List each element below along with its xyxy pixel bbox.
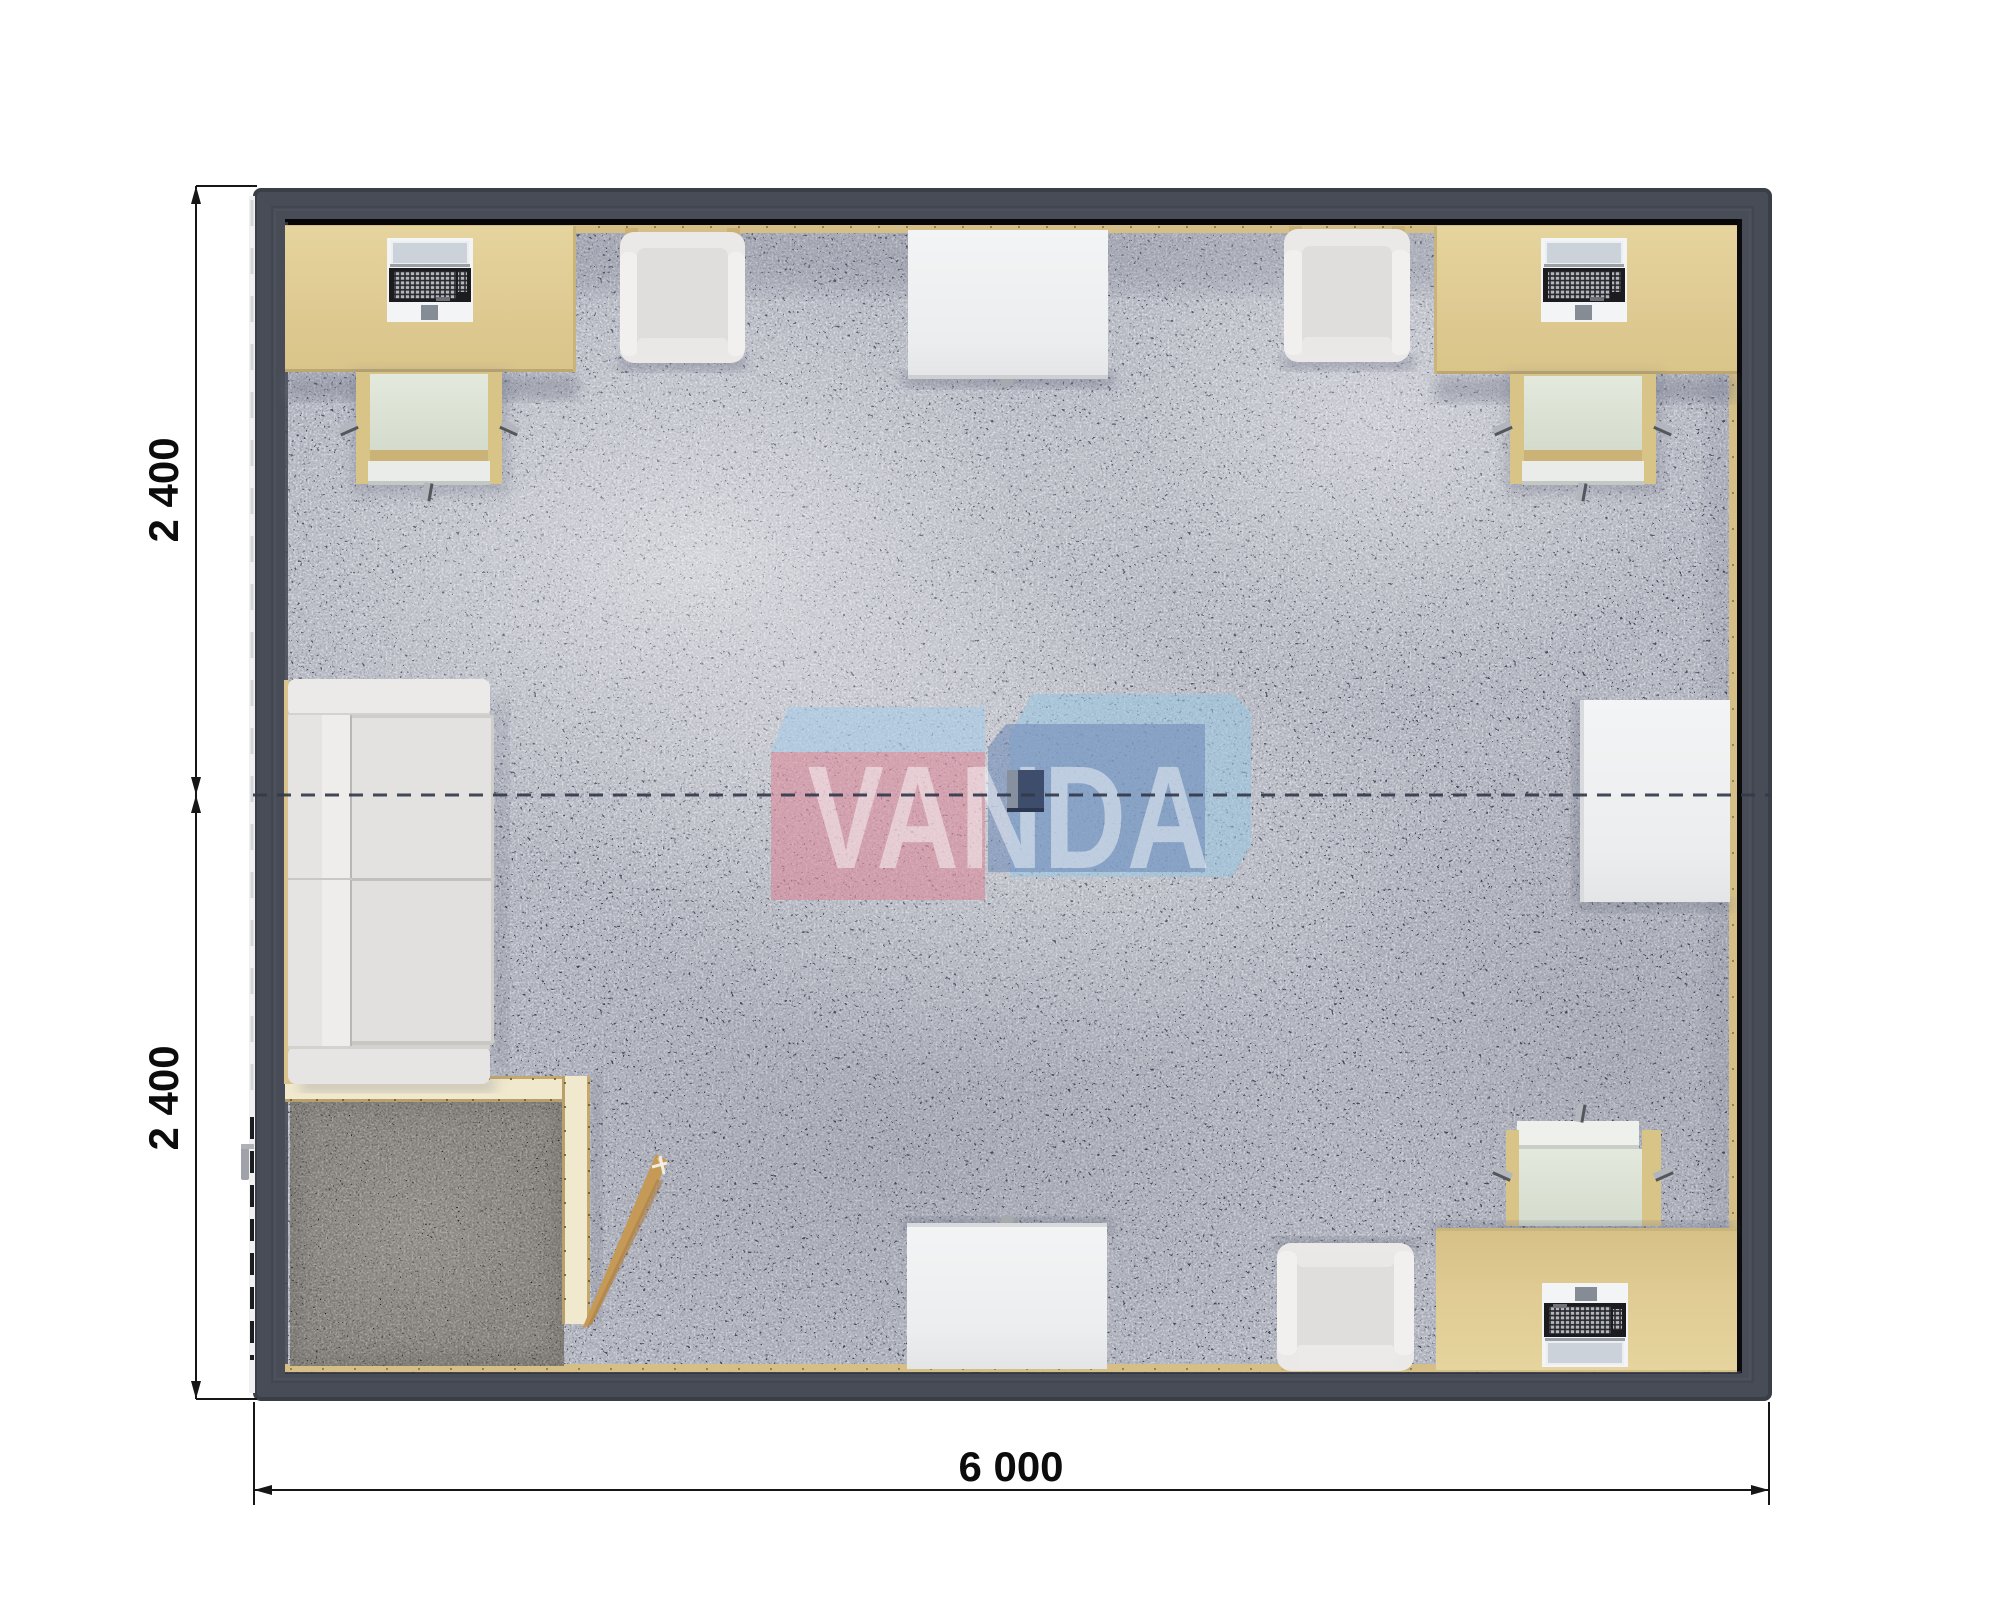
svg-text:6 000: 6 000 (958, 1443, 1063, 1490)
svg-text:2 400: 2 400 (140, 437, 187, 542)
svg-text:VANDA: VANDA (807, 735, 1210, 899)
svg-text:2 400: 2 400 (140, 1045, 187, 1150)
